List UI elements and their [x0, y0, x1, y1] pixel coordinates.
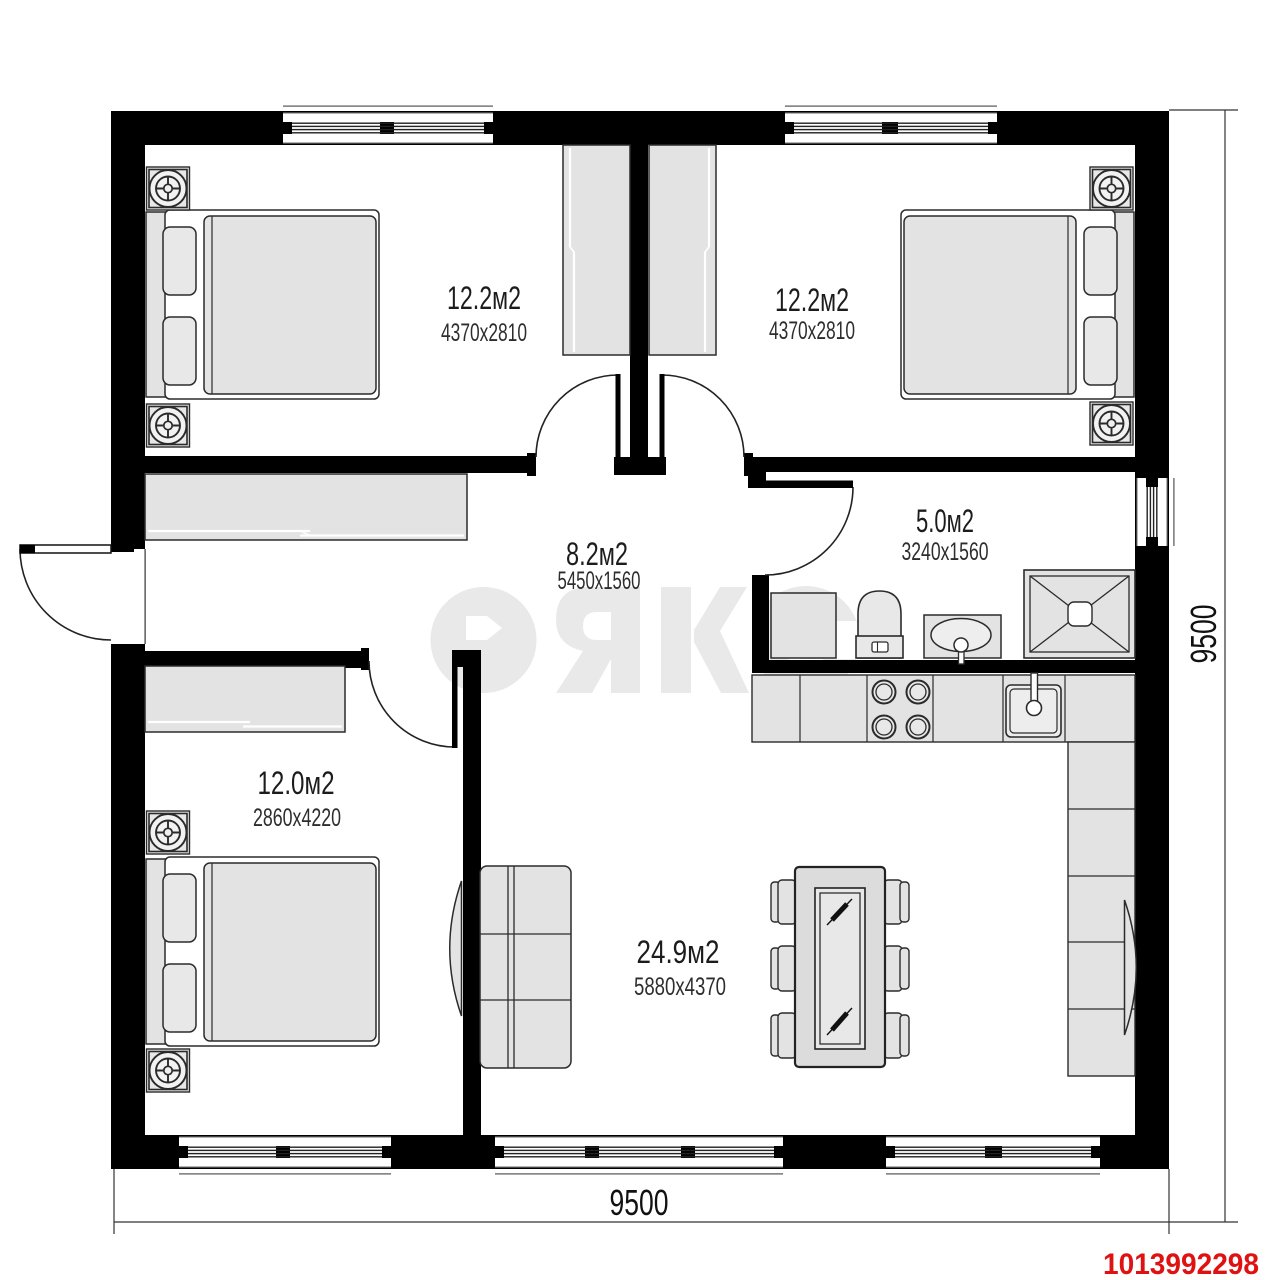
svg-text:2860х4220: 2860х4220: [253, 804, 341, 832]
svg-text:4370х2810: 4370х2810: [769, 317, 855, 345]
svg-text:12.2м2: 12.2м2: [775, 282, 849, 318]
svg-text:12.2м2: 12.2м2: [447, 280, 521, 316]
svg-text:5450х1560: 5450х1560: [558, 567, 641, 595]
svg-text:1013992298: 1013992298: [1103, 1248, 1259, 1280]
svg-text:24.9м2: 24.9м2: [637, 934, 720, 970]
svg-text:5.0м2: 5.0м2: [916, 503, 974, 539]
svg-text:4370х2810: 4370х2810: [441, 319, 527, 347]
svg-text:9500: 9500: [1183, 605, 1224, 664]
svg-text:12.0м2: 12.0м2: [258, 765, 335, 801]
svg-text:3240х1560: 3240х1560: [902, 538, 989, 566]
svg-text:5880х4370: 5880х4370: [634, 973, 726, 1001]
svg-text:9500: 9500: [610, 1182, 669, 1223]
